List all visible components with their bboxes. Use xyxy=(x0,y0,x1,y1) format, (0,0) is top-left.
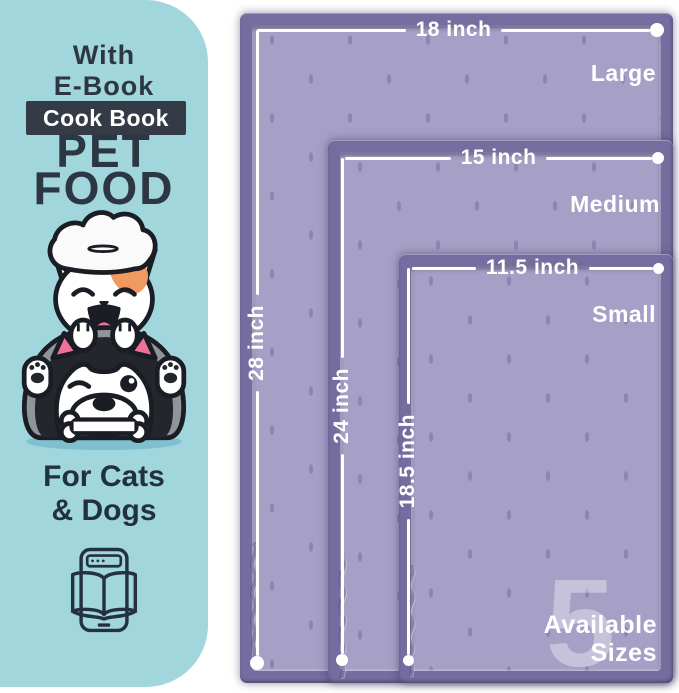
tablet-open-book-icon xyxy=(62,546,146,640)
dimension-endpoint-dot xyxy=(650,23,664,37)
dimension-endpoint-dot xyxy=(336,654,348,666)
available-sizes-text: Available Sizes xyxy=(544,612,657,667)
size-label-medium: Medium xyxy=(570,191,660,218)
width-dimension-small: 11.5 inch xyxy=(412,253,664,283)
height-dimension-large: 28 inch xyxy=(242,30,272,670)
dimension-line xyxy=(407,519,410,655)
height-label-small: 18.5 inch xyxy=(396,404,420,518)
height-dimension-small: 18.5 inch xyxy=(393,268,423,666)
dimension-endpoint-dot xyxy=(250,656,264,670)
width-label-small: 11.5 inch xyxy=(476,256,589,280)
width-dimension-medium: 15 inch xyxy=(345,143,664,173)
dimension-endpoint-dot xyxy=(403,655,414,666)
height-dimension-medium: 24 inch xyxy=(327,158,357,666)
ebook-subtitle: With E-Book xyxy=(0,40,208,102)
size-label-small: Small xyxy=(592,301,656,328)
width-label-large: 18 inch xyxy=(406,18,502,42)
dimension-endpoint-dot xyxy=(652,152,664,164)
dimension-line xyxy=(589,267,653,270)
available-sizes-line2: Sizes xyxy=(544,640,657,668)
dimension-line xyxy=(256,391,259,656)
dimension-line xyxy=(501,29,650,32)
cat-dog-bone-icon xyxy=(9,206,199,453)
height-label-large: 28 inch xyxy=(245,295,269,391)
ebook-subtitle-line2: E-Book xyxy=(0,71,208,102)
dimension-line xyxy=(257,29,406,32)
dimension-line xyxy=(546,157,652,160)
available-sizes-line1: Available xyxy=(544,612,657,640)
dimension-line xyxy=(407,268,410,404)
ebook-promo-panel: With E-Book Cook Book PET FOOD xyxy=(0,0,208,687)
dimension-endpoint-dot xyxy=(653,263,664,274)
pet-food-title-line2: FOOD xyxy=(0,170,208,207)
dimension-line xyxy=(345,157,451,160)
dimension-line xyxy=(341,454,344,654)
audience-line1: For Cats xyxy=(0,460,208,494)
pet-food-title: PET FOOD xyxy=(0,133,208,207)
audience-text: For Cats & Dogs xyxy=(0,460,208,528)
cat-chef-and-dog-illustration xyxy=(9,206,199,458)
dimension-line xyxy=(256,30,259,295)
ebook-subtitle-line1: With xyxy=(0,40,208,71)
ebook-tablet-book-icon xyxy=(62,546,146,645)
width-label-medium: 15 inch xyxy=(451,146,547,170)
dimension-line xyxy=(341,158,344,358)
width-dimension-large: 18 inch xyxy=(257,15,664,45)
height-label-medium: 24 inch xyxy=(330,358,354,454)
size-label-large: Large xyxy=(591,60,656,87)
audience-line2: & Dogs xyxy=(0,494,208,528)
